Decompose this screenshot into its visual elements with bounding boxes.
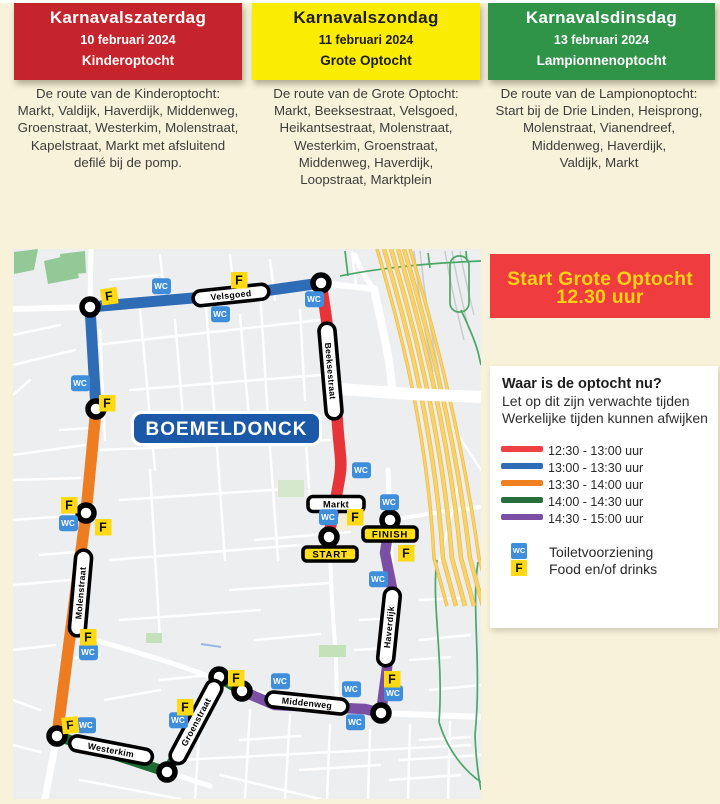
svg-text:F: F [99,520,107,534]
svg-text:WC: WC [81,648,95,657]
svg-text:WC: WC [344,685,358,694]
svg-text:WC: WC [79,721,93,730]
svg-text:F: F [402,546,410,560]
svg-text:START: START [312,549,347,560]
svg-text:WC: WC [354,466,368,475]
svg-text:F: F [84,630,92,644]
svg-text:WC: WC [154,282,168,291]
svg-text:F: F [235,273,243,287]
svg-text:F: F [65,498,73,512]
svg-text:WC: WC [307,295,321,304]
svg-text:FINISH: FINISH [372,529,408,540]
svg-text:F: F [351,510,359,524]
svg-text:Markt: Markt [323,499,349,509]
svg-text:BOEMELDONCK: BOEMELDONCK [146,419,308,440]
svg-text:WC: WC [171,716,185,725]
svg-text:F: F [181,700,189,714]
svg-text:WC: WC [213,310,227,319]
svg-text:WC: WC [386,689,400,698]
svg-text:WC: WC [61,519,75,528]
svg-text:F: F [388,672,396,686]
svg-text:F: F [103,396,111,410]
svg-text:WC: WC [348,718,362,727]
svg-text:WC: WC [273,677,287,686]
svg-text:WC: WC [73,379,87,388]
svg-text:WC: WC [321,513,335,522]
svg-text:WC: WC [382,498,396,507]
svg-text:WC: WC [371,575,385,584]
svg-text:F: F [232,671,240,685]
